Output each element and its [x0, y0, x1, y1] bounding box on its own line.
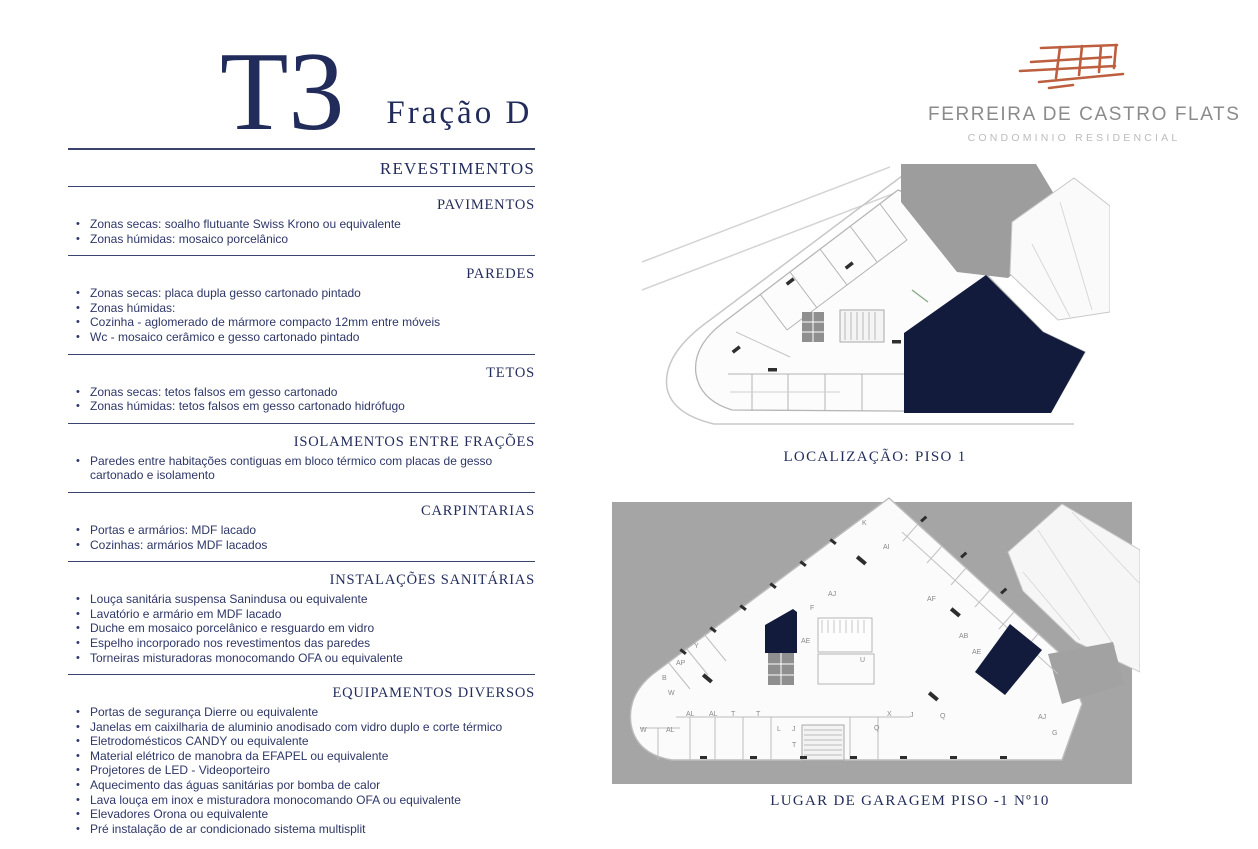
spec-section: EQUIPAMENTOS DIVERSOSPortas de segurança…: [68, 685, 535, 836]
divider-line: [68, 492, 535, 493]
spec-item: Janelas em caixilharia de aluminio anodi…: [90, 720, 535, 735]
floor-plan-2: KAIAFABAEAJFAEUYAPBWWALALALTTLJTQXJQAJG: [610, 492, 1140, 792]
spec-item: Material elétrico de manobra da EFAPEL o…: [90, 749, 535, 764]
page-title-unit: T3: [220, 43, 344, 142]
spec-item: Zonas secas: tetos falsos em gesso carto…: [90, 385, 535, 400]
spec-item: Portas de segurança Dierre ou equivalent…: [90, 705, 535, 720]
parking-spot-label: Q: [874, 725, 880, 732]
spec-list: Zonas secas: soalho flutuante Swiss Kron…: [68, 217, 535, 246]
spec-item: Aquecimento das águas sanitárias por bom…: [90, 778, 535, 793]
spec-section: TETOSZonas secas: tetos falsos em gesso …: [68, 365, 535, 414]
parking-spot-label: AL: [666, 727, 675, 734]
page-title-fraction: Fração D: [386, 95, 532, 132]
parking-spot-label: Q: [940, 713, 946, 720]
spec-item: Lava louça em inox e misturadora monocom…: [90, 793, 535, 808]
parking-spot-label: AE: [801, 638, 811, 645]
spec-list: Zonas secas: placa dupla gesso cartonado…: [68, 286, 535, 344]
parking-spot-label: W: [668, 690, 675, 697]
floor-plan-1: [640, 162, 1110, 447]
brand-name: FERREIRA DE CASTRO FLATS: [928, 104, 1220, 126]
parking-spot-label: F: [810, 605, 814, 612]
spec-sections: PAVIMENTOSZonas secas: soalho flutuante …: [68, 197, 535, 836]
section-heading: INSTALAÇÕES SANITÁRIAS: [68, 572, 535, 589]
parking-spot-label: AL: [709, 711, 718, 718]
page-title: T3 Fração D: [68, 30, 535, 142]
spec-item: Elevadores Orona ou equivalente: [90, 807, 535, 822]
spec-item: Eletrodomésticos CANDY ou equivalente: [90, 734, 535, 749]
spec-list: Portas e armários: MDF lacadoCozinhas: a…: [68, 523, 535, 552]
spec-section: PAREDESZonas secas: placa dupla gesso ca…: [68, 266, 535, 344]
parking-spot-label: G: [1052, 730, 1057, 737]
parking-spot-label: U: [860, 657, 865, 664]
spec-item: Wc - mosaico cerâmico e gesso cartonado …: [90, 330, 535, 345]
spec-item: Louça sanitária suspensa Sanindusa ou eq…: [90, 592, 535, 607]
section-heading: PAVIMENTOS: [68, 197, 535, 214]
spec-item: Portas e armários: MDF lacado: [90, 523, 535, 538]
spec-item: Lavatório e armário em MDF lacado: [90, 607, 535, 622]
parking-spot-label: AJ: [1038, 714, 1046, 721]
divider-line: [68, 255, 535, 256]
parking-spot-label: AB: [959, 633, 969, 640]
brand-subtitle: CONDOMINIO RESIDENCIAL: [928, 132, 1220, 144]
spec-item: Zonas húmidas: tetos falsos em gesso car…: [90, 399, 535, 414]
spec-item: Cozinha - aglomerado de mármore compacto…: [90, 315, 535, 330]
spec-list: Portas de segurança Dierre ou equivalent…: [68, 705, 535, 836]
spec-item: Pré instalação de ar condicionado sistem…: [90, 822, 535, 837]
parking-spot-label: W: [640, 727, 647, 734]
spec-column: T3 Fração D REVESTIMENTOS PAVIMENTOSZona…: [68, 30, 535, 845]
spec-section: CARPINTARIASPortas e armários: MDF lacad…: [68, 503, 535, 552]
divider-line: [68, 561, 535, 562]
parking-spot-label: J: [910, 712, 914, 719]
spec-list: Zonas secas: tetos falsos em gesso carto…: [68, 385, 535, 414]
main-heading: REVESTIMENTOS: [68, 159, 535, 179]
spec-section: PAVIMENTOSZonas secas: soalho flutuante …: [68, 197, 535, 246]
divider-line: [68, 354, 535, 355]
spec-item: Torneiras misturadoras monocomando OFA o…: [90, 651, 535, 666]
spec-section: INSTALAÇÕES SANITÁRIASLouça sanitária su…: [68, 572, 535, 665]
section-heading: ISOLAMENTOS ENTRE FRAÇÕES: [68, 434, 535, 451]
parking-spot-label: T: [731, 711, 736, 718]
divider-line: [68, 674, 535, 675]
parking-spot-label: T: [756, 711, 761, 718]
divider-line: [68, 423, 535, 424]
plan-caption-1: LOCALIZAÇÃO: PISO 1: [640, 449, 1110, 466]
spec-item: Zonas secas: placa dupla gesso cartonado…: [90, 286, 535, 301]
boat-sketch-icon: [1011, 38, 1137, 96]
spec-item: Espelho incorporado nos revestimentos da…: [90, 636, 535, 651]
parking-spot-label: X: [887, 711, 892, 718]
parking-spot-label: K: [862, 520, 867, 527]
parking-spot-label: L: [777, 726, 781, 733]
parking-spot-label: AF: [927, 596, 936, 603]
stairs: [840, 310, 884, 342]
spec-item: Projetores de LED - Videoporteiro: [90, 763, 535, 778]
divider-line: [68, 186, 535, 187]
parking-spot-label: AJ: [828, 591, 836, 598]
parking-spot-label: AI: [883, 544, 890, 551]
parking-spot-label: J: [792, 726, 796, 733]
parking-spot-label: AP: [676, 660, 686, 667]
parking-spot-label: Y: [694, 643, 699, 650]
spec-list: Louça sanitária suspensa Sanindusa ou eq…: [68, 592, 535, 665]
brand-logo: FERREIRA DE CASTRO FLATS CONDOMINIO RESI…: [928, 38, 1220, 144]
section-heading: TETOS: [68, 365, 535, 382]
spec-item: Zonas húmidas: mosaico porcelânico: [90, 232, 535, 247]
spec-item: Zonas húmidas:: [90, 301, 535, 316]
parking-spot-label: T: [792, 742, 797, 749]
spec-item: Paredes entre habitações contiguas em bl…: [90, 454, 535, 483]
spec-item: Cozinhas: armários MDF lacados: [90, 538, 535, 553]
parking-spot-label: AE: [972, 649, 982, 656]
parking-spot-label: B: [662, 675, 667, 682]
spec-item: Duche em mosaico porcelânico e resguardo…: [90, 621, 535, 636]
spec-list: Paredes entre habitações contiguas em bl…: [68, 454, 535, 483]
plan-caption-2: LUGAR DE GARAGEM PISO -1 Nº10: [645, 793, 1175, 810]
spec-sheet-page: T3 Fração D REVESTIMENTOS PAVIMENTOSZona…: [0, 0, 1258, 849]
spec-section: ISOLAMENTOS ENTRE FRAÇÕESParedes entre h…: [68, 434, 535, 483]
spec-item: Zonas secas: soalho flutuante Swiss Kron…: [90, 217, 535, 232]
section-heading: CARPINTARIAS: [68, 503, 535, 520]
parking-spot-label: AL: [686, 711, 695, 718]
section-heading: EQUIPAMENTOS DIVERSOS: [68, 685, 535, 702]
section-heading: PAREDES: [68, 266, 535, 283]
